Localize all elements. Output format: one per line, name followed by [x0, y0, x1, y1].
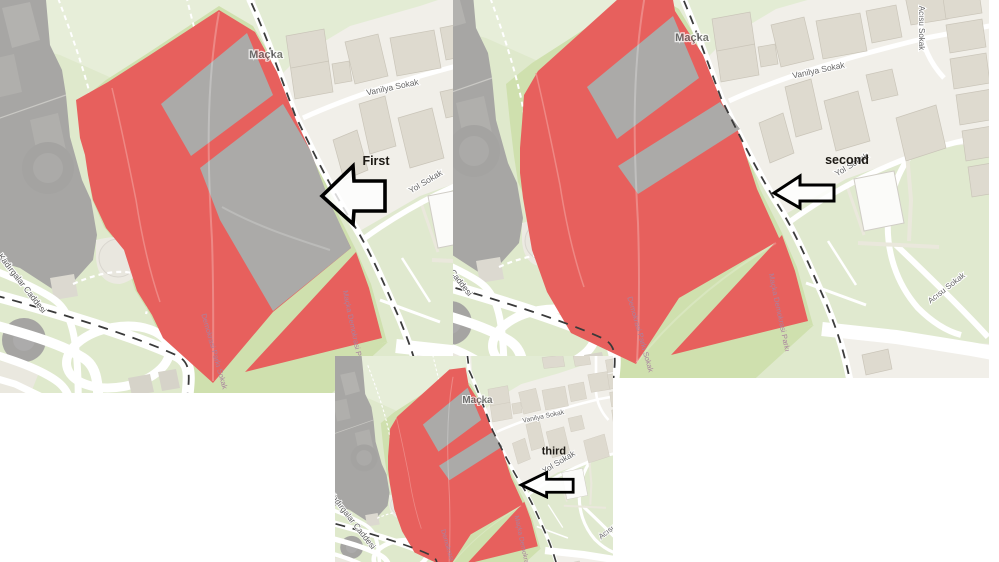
- svg-text:First: First: [362, 154, 390, 168]
- svg-text:second: second: [825, 153, 869, 167]
- svg-text:third: third: [542, 446, 566, 458]
